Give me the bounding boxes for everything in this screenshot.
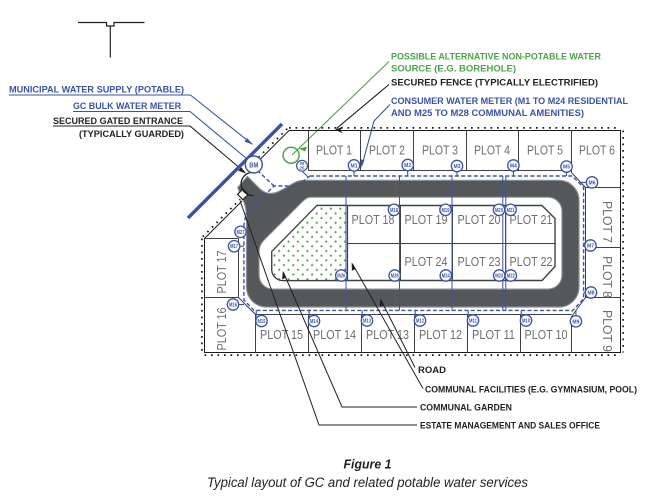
svg-text:PLOT 22: PLOT 22 [510,254,553,269]
svg-text:COMMUNAL FACILITIES (E.G. GYMN: COMMUNAL FACILITIES (E.G. GYMNASIUM, POO… [425,385,637,395]
svg-text:PLOT 8: PLOT 8 [600,256,615,298]
svg-text:PLOT 18: PLOT 18 [352,212,395,227]
svg-text:M6: M6 [589,180,596,186]
svg-text:PLOT 1: PLOT 1 [316,143,352,158]
svg-text:M23: M23 [495,274,503,280]
svg-text:PLOT 17: PLOT 17 [214,251,229,294]
svg-text:PLOT 5: PLOT 5 [527,143,563,158]
svg-text:(TYPICALLY GUARDED): (TYPICALLY GUARDED) [79,129,184,139]
svg-text:M3: M3 [454,164,461,170]
svg-text:M26: M26 [337,274,345,280]
svg-text:M28: M28 [391,274,399,280]
svg-text:SECURED GATED ENTRANCE: SECURED GATED ENTRANCE [53,116,183,126]
svg-text:M18: M18 [390,208,398,214]
svg-text:ESTATE MANAGEMENT AND SALES OF: ESTATE MANAGEMENT AND SALES OFFICE [420,421,600,431]
svg-text:SOURCE (E.G. BOREHOLE): SOURCE (E.G. BOREHOLE) [391,63,516,73]
svg-text:M20: M20 [495,208,503,214]
svg-text:25: 25 [300,165,306,170]
svg-text:Figure 1: Figure 1 [344,457,392,471]
svg-text:M1: M1 [351,163,358,169]
svg-text:M11: M11 [469,319,477,325]
svg-text:M17: M17 [230,244,238,250]
svg-text:PLOT 14: PLOT 14 [313,327,356,342]
svg-text:M15: M15 [258,319,266,325]
svg-text:M4: M4 [510,164,517,170]
svg-text:M7: M7 [587,244,594,250]
svg-text:AND M25 TO M28 COMMUNAL AMENIT: AND M25 TO M28 COMMUNAL AMENITIES) [391,108,584,118]
svg-text:PLOT 4: PLOT 4 [474,143,510,158]
svg-text:M21: M21 [507,208,515,214]
svg-text:PLOT 3: PLOT 3 [422,143,458,158]
svg-text:PLOT 15: PLOT 15 [260,327,303,342]
svg-text:PLOT 11: PLOT 11 [472,327,515,342]
svg-text:M10: M10 [522,319,530,325]
svg-text:MUNICIPAL WATER SUPPLY (POTABL: MUNICIPAL WATER SUPPLY (POTABLE) [9,85,184,95]
svg-text:PLOT 23: PLOT 23 [458,254,501,269]
svg-text:PLOT 16: PLOT 16 [214,308,229,351]
svg-text:PLOT 12: PLOT 12 [419,327,462,342]
svg-text:PLOT 2: PLOT 2 [369,143,405,158]
svg-text:PLOT 9: PLOT 9 [600,310,615,352]
svg-text:PLOT 20: PLOT 20 [458,212,501,227]
svg-text:PLOT 13: PLOT 13 [366,327,409,342]
svg-text:M9: M9 [572,319,579,325]
svg-text:PLOT 6: PLOT 6 [579,143,615,158]
svg-text:CONSUMER WATER METER (M1 TO M2: CONSUMER WATER METER (M1 TO M24 RESIDENT… [391,96,628,106]
svg-text:M2: M2 [404,163,411,169]
svg-text:GC BULK WATER METER: GC BULK WATER METER [73,101,181,111]
svg-text:M24: M24 [442,274,450,280]
svg-text:ROAD: ROAD [418,365,447,375]
svg-text:M14: M14 [310,319,318,325]
svg-text:BM: BM [249,163,258,170]
svg-text:M8: M8 [588,291,595,297]
svg-text:PLOT 10: PLOT 10 [525,327,568,342]
svg-text:POSSIBLE ALTERNATIVE NON-POTAB: POSSIBLE ALTERNATIVE NON-POTABLE WATER [391,51,601,61]
svg-text:Typical layout of GC and relat: Typical layout of GC and related potable… [207,475,528,490]
svg-text:PLOT 21: PLOT 21 [510,212,553,227]
svg-text:M13: M13 [363,319,371,325]
svg-text:M19: M19 [442,208,450,214]
svg-text:PLOT 7: PLOT 7 [600,201,615,243]
svg-text:M27: M27 [237,230,245,236]
svg-text:M5: M5 [563,165,570,171]
svg-text:COMMUNAL GARDEN: COMMUNAL GARDEN [420,403,512,413]
svg-text:M22: M22 [507,274,515,280]
svg-text:M16: M16 [229,303,237,309]
svg-text:M12: M12 [416,319,424,325]
svg-text:PLOT 24: PLOT 24 [405,254,448,269]
svg-text:SECURED FENCE (TYPICALLY ELECT: SECURED FENCE (TYPICALLY ELECTRIFIED) [391,78,598,88]
